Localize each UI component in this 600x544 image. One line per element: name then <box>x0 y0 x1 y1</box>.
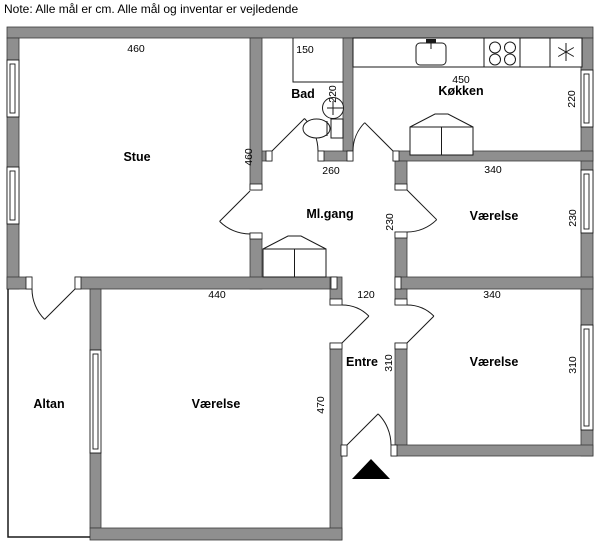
wall-vaerelse-sw-bottom <box>90 528 342 540</box>
door-jamb <box>395 343 407 349</box>
window-kokken <box>581 70 593 127</box>
dim-stue-top: 460 <box>127 43 145 55</box>
wall-mid-band-right <box>395 277 593 289</box>
window-vaerelse-ne <box>581 170 593 233</box>
door-altan <box>26 277 81 319</box>
door-leaf <box>347 414 378 445</box>
note-text: Note: Alle mål er cm. Alle mål og invent… <box>4 2 298 16</box>
door-jamb <box>250 184 262 190</box>
door-jamb <box>347 151 353 161</box>
passage-jamb <box>331 277 337 289</box>
entrance-triangle-icon <box>352 459 390 479</box>
door-arc <box>407 305 434 316</box>
counter-outline <box>353 38 582 67</box>
burner <box>505 42 516 53</box>
door-jamb <box>330 343 342 349</box>
wardrobe-open-doors <box>263 236 326 249</box>
room-label-stue: Stue <box>123 150 150 164</box>
window-glass <box>584 329 589 426</box>
door-leaf <box>407 316 434 343</box>
door-kokken <box>347 123 399 161</box>
room-label-bad: Bad <box>291 87 315 101</box>
door-arc <box>353 123 365 151</box>
burner <box>490 42 501 53</box>
sink-faucet <box>426 39 436 43</box>
door-arc <box>378 414 391 445</box>
dim-stue-side: 460 <box>243 148 255 166</box>
dim-entre-top: 120 <box>357 289 375 301</box>
door-arc <box>407 220 437 232</box>
fixtures <box>263 38 582 479</box>
dim-vaerelse-ne-top: 340 <box>484 164 502 176</box>
toilet-bowl <box>303 119 330 138</box>
wardrobe-open-doors <box>410 114 473 127</box>
door-stue-mlgang <box>220 184 262 239</box>
floor-plan: Note: Alle mål er cm. Alle mål og invent… <box>0 0 600 544</box>
dim-kokken-width: 450 <box>452 74 470 86</box>
window-glass <box>584 74 589 123</box>
room-label-vaerelse-se: Værelse <box>470 355 519 369</box>
dim-kokken-right: 220 <box>566 90 578 108</box>
door-jamb <box>393 151 399 161</box>
door-leaf <box>220 191 250 221</box>
door-jamb <box>395 232 407 238</box>
door-leaf <box>45 289 75 319</box>
room-label-vaerelse-sw: Værelse <box>192 397 241 411</box>
room-label-mlgang: Ml.gang <box>306 207 353 221</box>
door-entrance <box>341 414 397 456</box>
dim-mlgang-top: 260 <box>322 165 340 177</box>
door-vaerelse-se <box>395 299 434 349</box>
door-jamb <box>266 151 272 161</box>
door-leaf <box>407 190 437 220</box>
door-leaf <box>272 119 305 152</box>
door-jamb <box>250 233 262 239</box>
door-jamb <box>330 299 342 305</box>
window-stue-2 <box>7 167 19 224</box>
room-label-kokken: Køkken <box>438 84 483 98</box>
room-label-altan: Altan <box>33 397 64 411</box>
dim-vaerelse-se-side: 310 <box>567 356 579 374</box>
wall-stue-right-upper <box>250 38 262 190</box>
toilet-tank <box>331 119 343 138</box>
dim-mlgang-side: 230 <box>384 213 396 231</box>
passage-jamb <box>395 277 401 289</box>
altan-outline <box>8 289 90 537</box>
dim-vaerelse-sw-top: 440 <box>208 289 226 301</box>
wall-bad-right <box>343 38 353 151</box>
dim-bad-width: 150 <box>296 44 314 56</box>
wall-entre-right-lower <box>395 343 407 445</box>
door-jamb <box>75 277 81 289</box>
wall-mid-band-center <box>75 277 337 289</box>
door-arc <box>342 305 369 316</box>
dim-vaerelse-se-top: 340 <box>483 289 501 301</box>
door-vaerelse-ne <box>395 184 437 238</box>
walls <box>7 27 593 540</box>
burner <box>505 54 516 65</box>
door-vaerelse-sw <box>330 299 369 349</box>
window-stue-1 <box>7 60 19 117</box>
door-jamb <box>341 445 347 456</box>
dim-kokken-left: 220 <box>327 85 339 103</box>
door-arc <box>220 221 250 234</box>
window-glass <box>10 64 15 113</box>
window-vaerelse-se <box>581 325 593 430</box>
door-jamb <box>26 277 32 289</box>
door-jamb <box>318 151 324 161</box>
wardrobe-icon-mlgang <box>263 236 326 277</box>
door-arc <box>32 289 45 319</box>
dim-vaerelse-ne-side: 230 <box>567 209 579 227</box>
wall-outer-top <box>7 27 593 38</box>
room-label-entre: Entre <box>346 355 378 369</box>
window-glass <box>93 354 98 449</box>
door-leaf <box>342 316 369 343</box>
door-leaf <box>365 123 393 151</box>
window-glass <box>584 174 589 229</box>
wall-altan-lower <box>90 453 101 528</box>
dim-vaerelse-sw-side: 470 <box>315 396 327 414</box>
room-label-vaerelse-ne: Værelse <box>470 209 519 223</box>
window-altan-door <box>90 350 101 453</box>
toilet-icon <box>303 119 343 138</box>
dim-entre-side: 310 <box>383 354 395 372</box>
door-jamb <box>395 299 407 305</box>
wardrobe-icon-kokken <box>410 114 473 155</box>
burner <box>490 54 501 65</box>
wall-bottom-right-block <box>391 445 593 456</box>
door-jamb <box>391 445 397 456</box>
wall-entre-left-lower <box>330 343 342 540</box>
door-jamb <box>395 184 407 190</box>
kitchen-counter <box>353 38 582 67</box>
floor-plan-canvas: Note: Alle mål er cm. Alle mål og invent… <box>0 0 600 544</box>
wall-altan-upper <box>90 289 101 350</box>
kitchen-sink-icon <box>416 39 446 65</box>
window-glass <box>10 171 15 220</box>
